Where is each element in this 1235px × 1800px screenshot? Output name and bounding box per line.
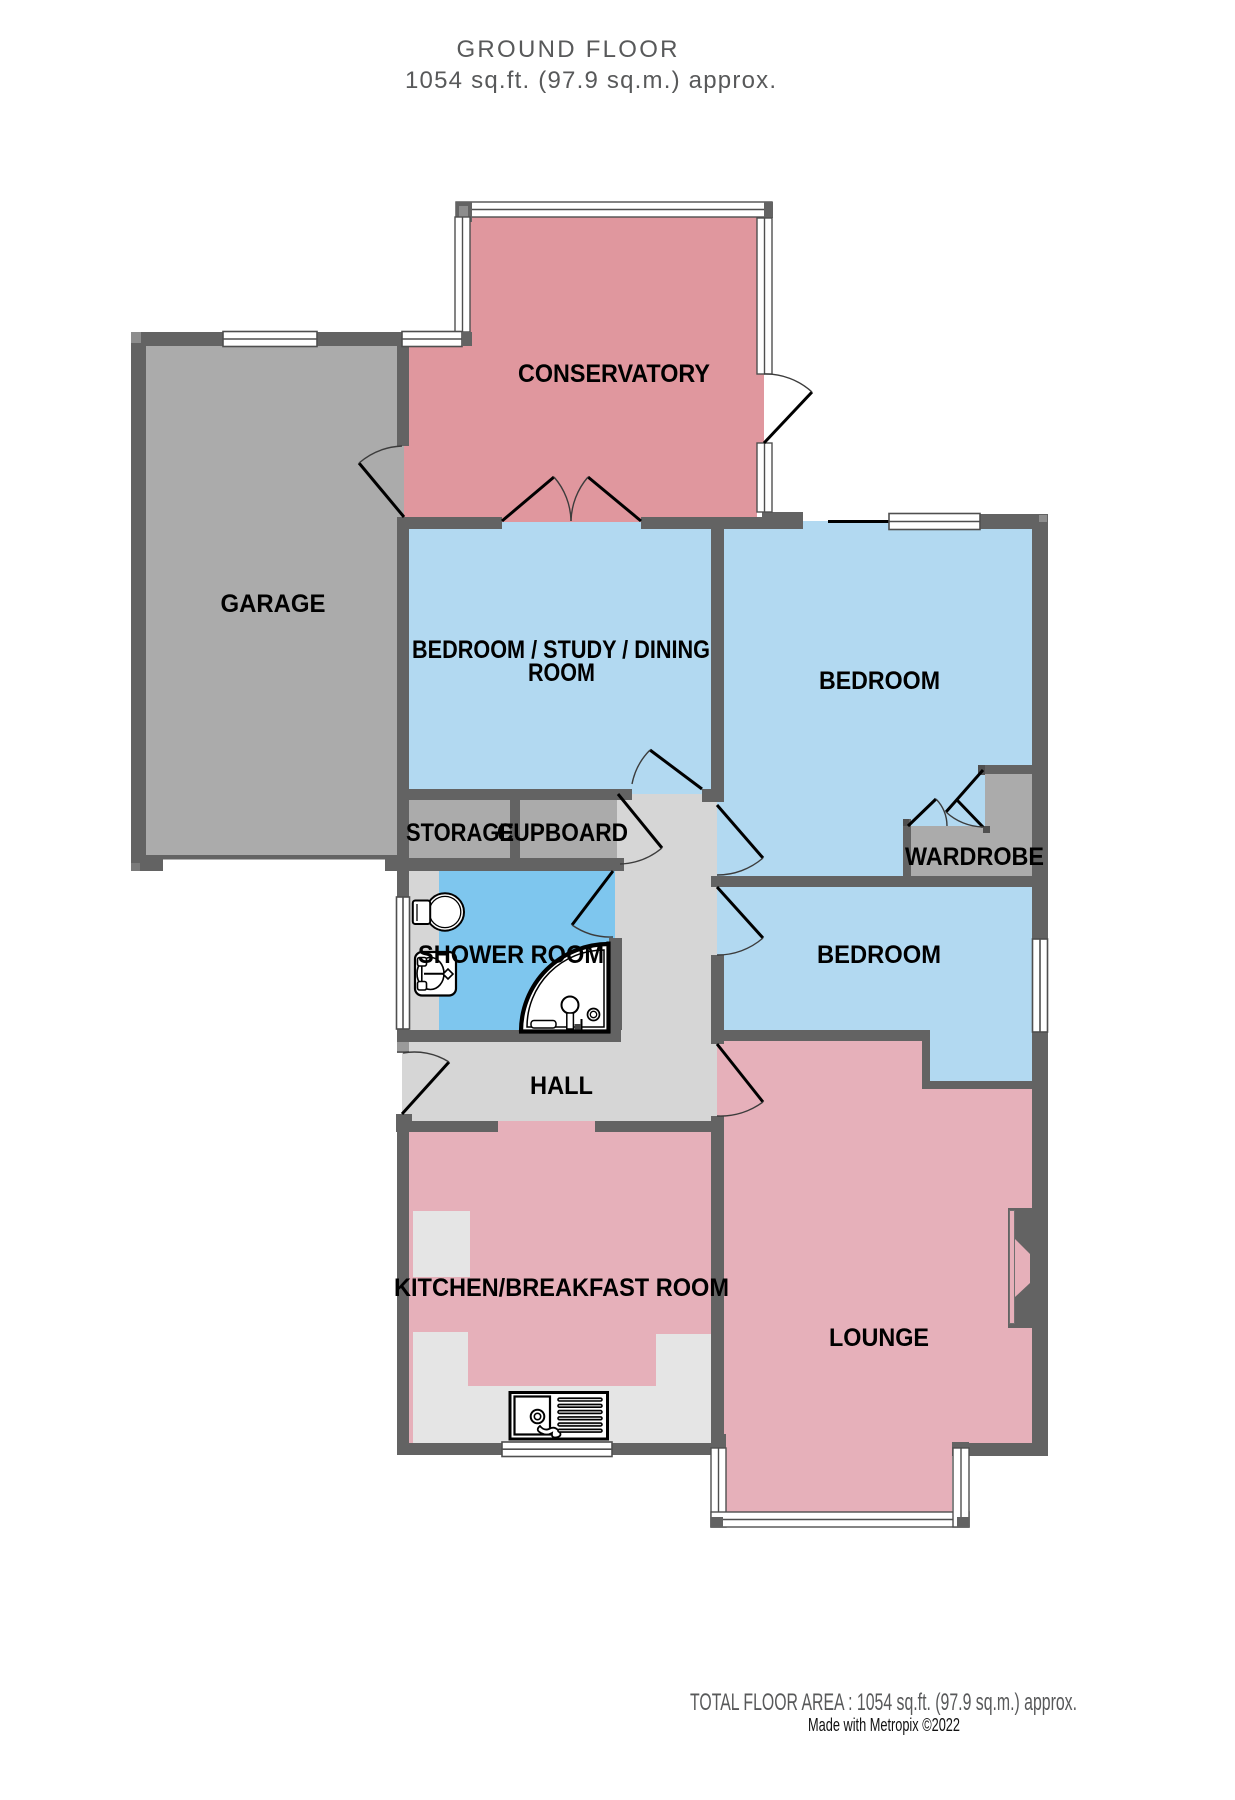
svg-text:BEDROOM: BEDROOM xyxy=(819,667,940,695)
svg-text:BEDROOM: BEDROOM xyxy=(817,941,941,969)
svg-text:WARDROBE: WARDROBE xyxy=(905,843,1044,871)
svg-text:TOTAL FLOOR AREA : 1054 sq.ft.: TOTAL FLOOR AREA : 1054 sq.ft. (97.9 sq.… xyxy=(690,1689,1077,1716)
svg-text:Made with Metropix ©2022: Made with Metropix ©2022 xyxy=(808,1715,960,1735)
svg-text:KITCHEN/BREAKFAST ROOM: KITCHEN/BREAKFAST ROOM xyxy=(394,1274,729,1302)
svg-text:LOUNGE: LOUNGE xyxy=(829,1324,929,1352)
svg-text:ROOM: ROOM xyxy=(528,659,595,687)
svg-text:CONSERVATORY: CONSERVATORY xyxy=(518,360,710,388)
svg-text:GROUND FLOOR: GROUND FLOOR xyxy=(457,36,678,63)
svg-text:GARAGE: GARAGE xyxy=(221,590,326,618)
svg-text:CUPBOARD: CUPBOARD xyxy=(497,819,628,847)
svg-text:1054 sq.ft. (97.9 sq.m.) appro: 1054 sq.ft. (97.9 sq.m.) approx. xyxy=(405,67,776,94)
svg-text:SHOWER ROOM: SHOWER ROOM xyxy=(418,941,604,969)
svg-text:HALL: HALL xyxy=(530,1072,593,1100)
